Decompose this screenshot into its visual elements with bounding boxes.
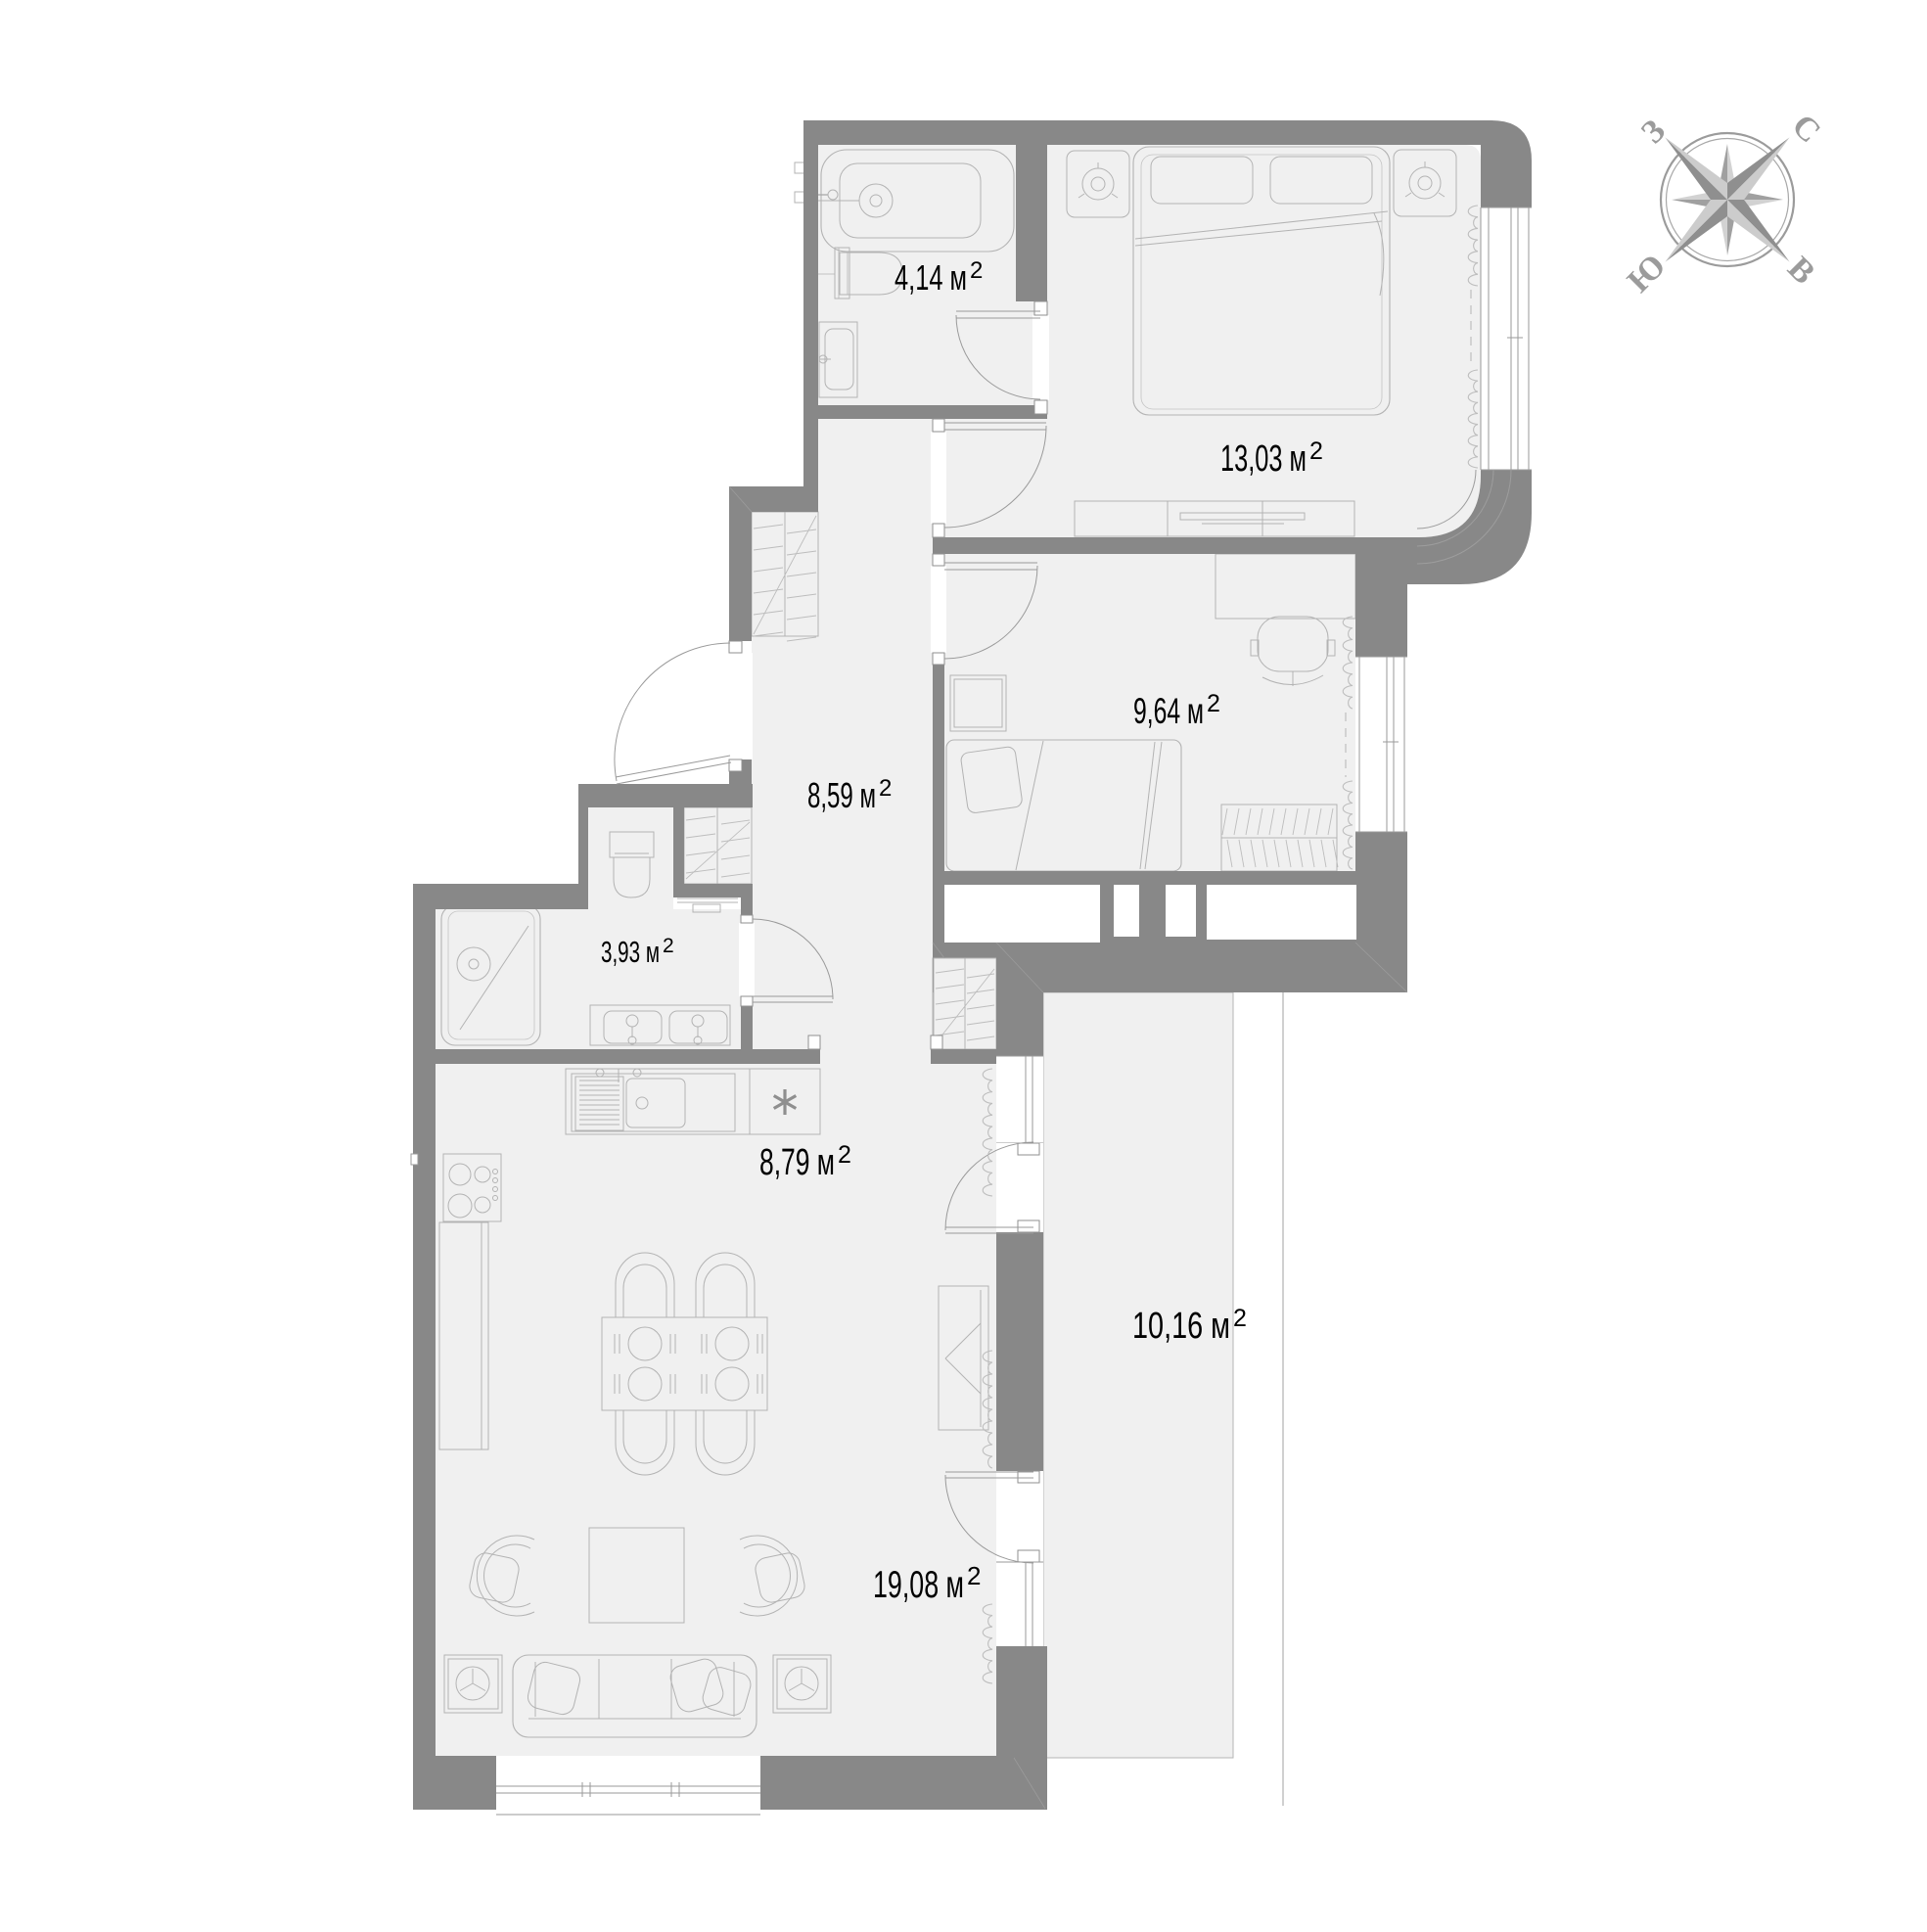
svg-text:19,08 м: 19,08 м: [873, 1564, 964, 1606]
svg-text:10,16 м: 10,16 м: [1132, 1306, 1230, 1347]
svg-text:9,64 м: 9,64 м: [1133, 691, 1204, 731]
svg-text:2: 2: [1233, 1305, 1247, 1332]
svg-text:8,79 м: 8,79 м: [759, 1142, 835, 1183]
svg-text:2: 2: [967, 1561, 981, 1590]
svg-text:4,14 м: 4,14 м: [895, 257, 967, 298]
svg-text:2: 2: [1207, 690, 1220, 717]
svg-text:2: 2: [879, 775, 892, 802]
svg-text:2: 2: [663, 935, 674, 957]
svg-text:2: 2: [970, 257, 983, 284]
svg-text:2: 2: [838, 1141, 851, 1169]
svg-text:8,59 м: 8,59 м: [807, 775, 876, 815]
svg-text:3,93 м: 3,93 м: [601, 935, 660, 969]
svg-text:2: 2: [1309, 437, 1323, 465]
svg-text:13,03 м: 13,03 м: [1220, 438, 1307, 480]
